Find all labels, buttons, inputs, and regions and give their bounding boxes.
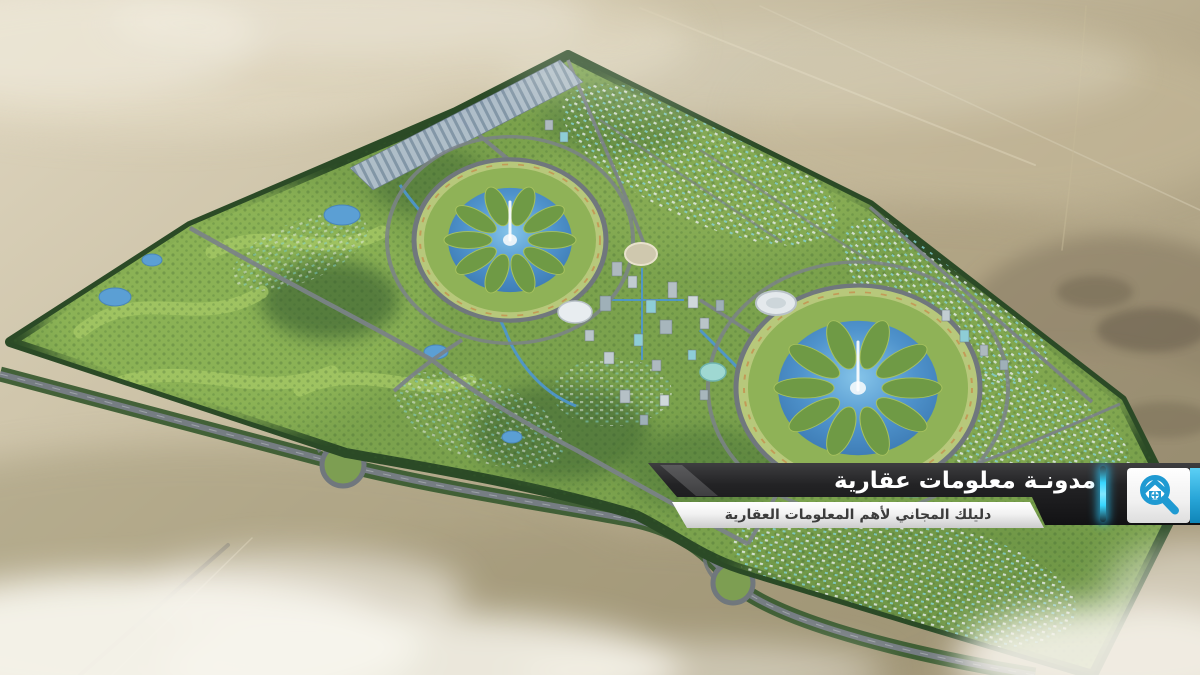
blog-header-image: دليلك المجاني لأهم المعلومات العقارية مد… <box>0 0 1200 675</box>
blog-logo <box>1127 468 1190 523</box>
glow-divider <box>1100 466 1106 522</box>
stadium <box>756 291 796 315</box>
house-magnifier-icon <box>1135 472 1183 520</box>
shell-building <box>625 243 657 265</box>
dome-building <box>558 301 592 323</box>
banner-subtitle-strip: دليلك المجاني لأهم المعلومات العقارية <box>672 502 1044 528</box>
flower-district-west <box>387 137 633 344</box>
banner-title: مدونـة معلومات عقارية <box>834 463 1096 499</box>
banner-subtitle: دليلك المجاني لأهم المعلومات العقارية <box>725 507 992 523</box>
glass-dome-building <box>700 363 726 381</box>
right-edge-accent <box>1190 468 1200 523</box>
aerial-city-render <box>0 0 1200 675</box>
